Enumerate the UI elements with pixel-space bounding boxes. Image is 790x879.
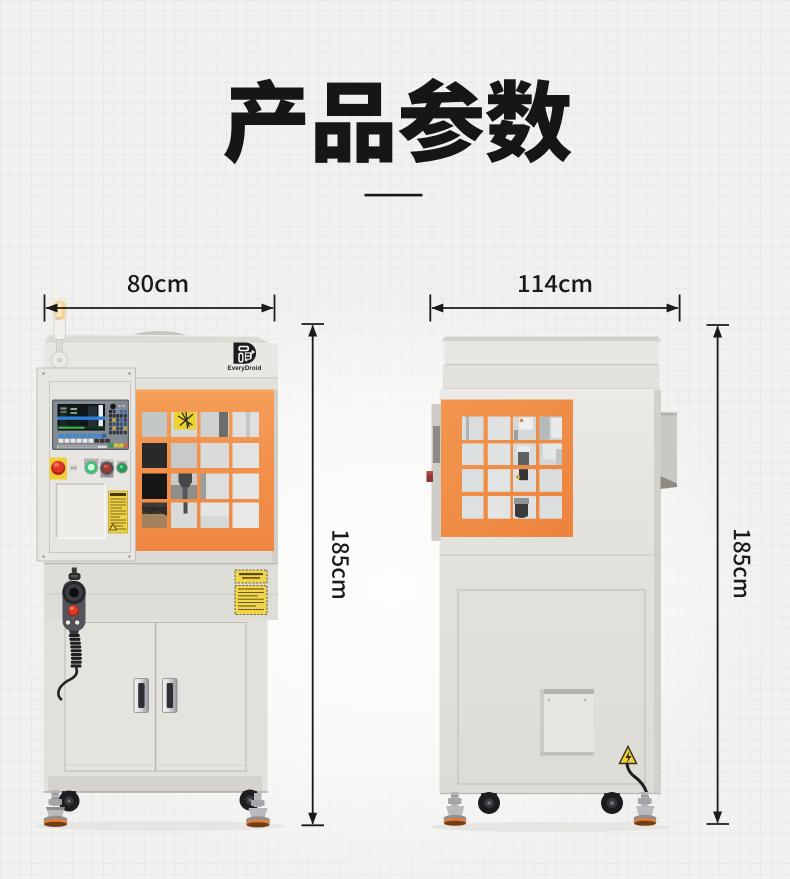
- svg-text:EveryDroid: EveryDroid: [227, 365, 261, 372]
